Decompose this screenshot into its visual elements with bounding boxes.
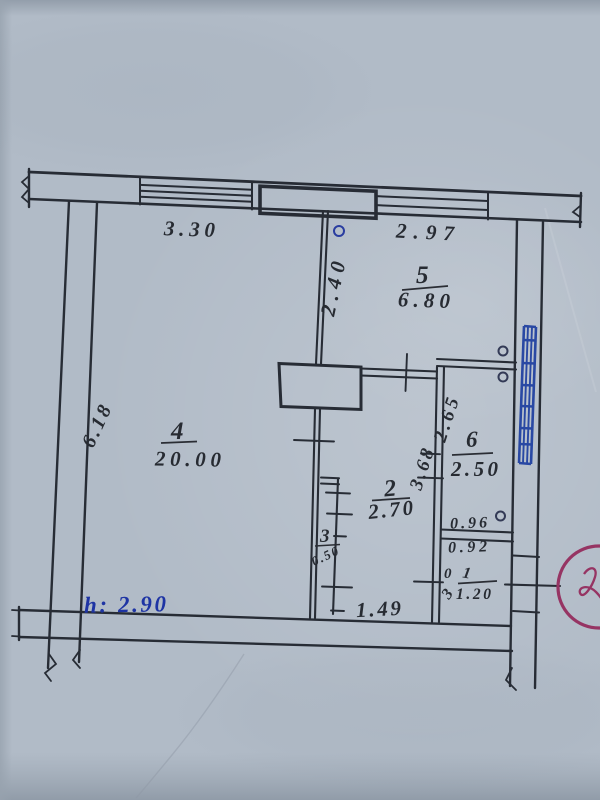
svg-text:1.20: 1.20 [456, 586, 491, 603]
svg-text:20.00: 20.00 [154, 446, 222, 471]
svg-text:6: 6 [466, 427, 478, 452]
svg-text:0.96: 0.96 [450, 514, 488, 532]
svg-text:4: 4 [170, 418, 184, 445]
svg-text:2.50: 2.50 [450, 457, 499, 481]
svg-text:0.92: 0.92 [448, 538, 488, 556]
svg-text:0: 0 [444, 566, 452, 582]
svg-text:5: 5 [416, 262, 429, 289]
svg-text:3: 3 [319, 526, 330, 547]
svg-text:1.49: 1.49 [355, 596, 402, 622]
svg-text:h: 2.90: h: 2.90 [84, 591, 167, 617]
svg-text:2.70: 2.70 [366, 495, 415, 524]
svg-text:6.80: 6.80 [398, 287, 451, 313]
svg-text:3.30: 3.30 [163, 216, 216, 242]
